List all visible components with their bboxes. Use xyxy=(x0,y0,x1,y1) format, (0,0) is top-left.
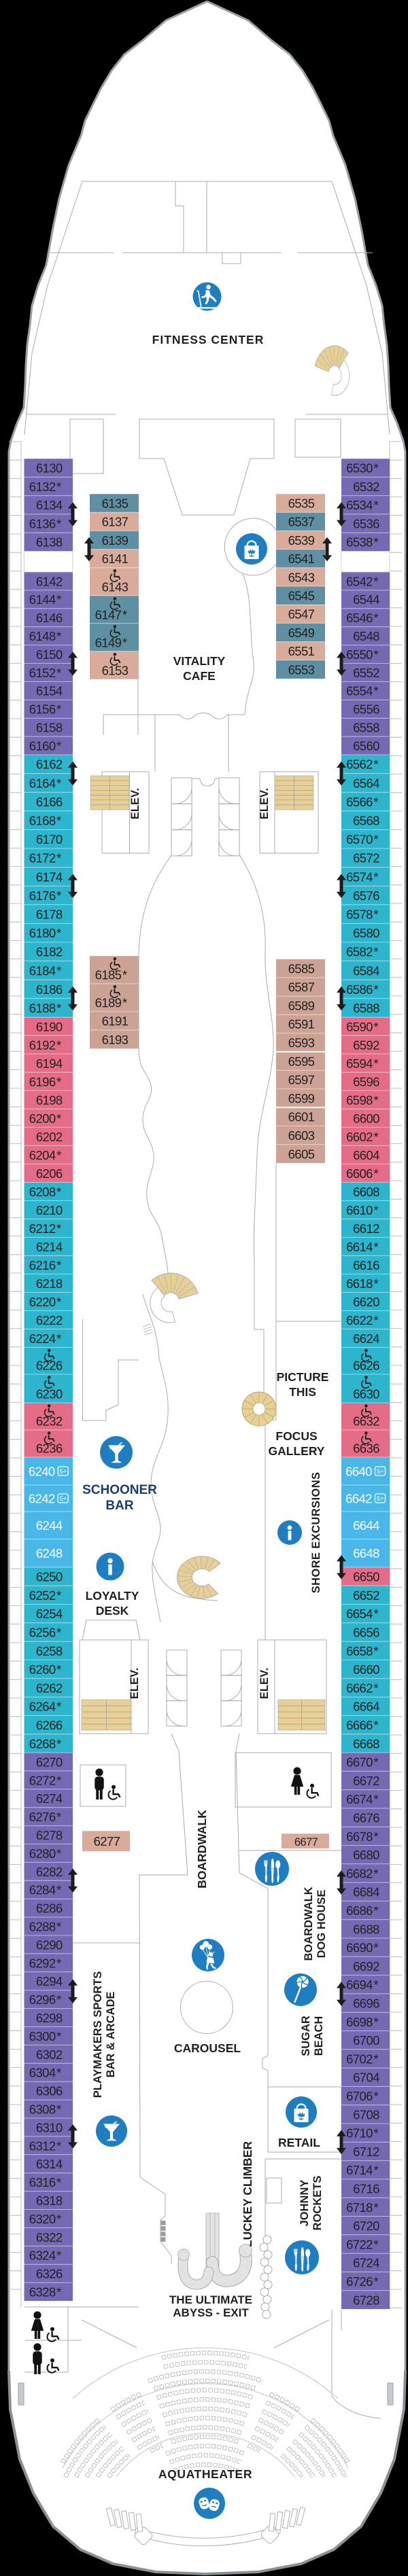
svg-text:6674*: 6674* xyxy=(346,1792,378,1806)
svg-text:6178: 6178 xyxy=(36,908,63,922)
svg-text:6706*: 6706* xyxy=(346,2089,378,2103)
svg-text:VITALITY: VITALITY xyxy=(173,654,226,668)
svg-text:6598*: 6598* xyxy=(346,1093,378,1107)
svg-text:6668: 6668 xyxy=(353,1736,379,1751)
svg-text:6696: 6696 xyxy=(353,1997,379,2011)
svg-text:6626: 6626 xyxy=(353,1359,379,1373)
svg-text:6728: 6728 xyxy=(353,2293,379,2307)
svg-text:6258: 6258 xyxy=(36,1644,63,1658)
svg-text:6132*: 6132* xyxy=(29,480,61,494)
svg-text:6170: 6170 xyxy=(36,832,63,846)
svg-text:6568: 6568 xyxy=(353,814,379,828)
svg-text:6306: 6306 xyxy=(36,2084,63,2098)
svg-text:6272*: 6272* xyxy=(29,1773,61,1787)
svg-text:ELEV.: ELEV. xyxy=(258,1668,271,1699)
svg-text:5+: 5+ xyxy=(377,1468,384,1475)
svg-text:6198: 6198 xyxy=(36,1093,63,1107)
svg-text:6292*: 6292* xyxy=(29,1956,61,1970)
svg-text:6654*: 6654* xyxy=(346,1607,378,1621)
svg-text:6640: 6640 xyxy=(345,1464,372,1478)
svg-text:6206: 6206 xyxy=(36,1166,63,1181)
svg-text:6280*: 6280* xyxy=(29,1846,61,1861)
svg-text:6648: 6648 xyxy=(353,1546,379,1560)
svg-text:6642: 6642 xyxy=(345,1491,372,1505)
svg-text:6194: 6194 xyxy=(36,1056,63,1071)
svg-text:6210: 6210 xyxy=(36,1203,63,1217)
svg-text:6537: 6537 xyxy=(288,515,315,529)
svg-text:6302: 6302 xyxy=(36,2047,63,2062)
svg-text:6188*: 6188* xyxy=(29,1001,61,1016)
svg-text:ELEV.: ELEV. xyxy=(129,788,141,819)
svg-text:6578*: 6578* xyxy=(346,908,378,922)
svg-text:6612: 6612 xyxy=(353,1221,379,1236)
svg-text:6662*: 6662* xyxy=(346,1681,378,1695)
svg-text:6636: 6636 xyxy=(353,1442,379,1456)
svg-text:6677: 6677 xyxy=(294,1836,318,1848)
svg-text:6720: 6720 xyxy=(353,2219,379,2233)
svg-text:6137: 6137 xyxy=(102,515,129,529)
svg-text:6308*: 6308* xyxy=(29,2103,61,2117)
svg-text:6236: 6236 xyxy=(36,1442,63,1456)
svg-text:6562*: 6562* xyxy=(346,757,378,772)
svg-text:6276*: 6276* xyxy=(29,1810,61,1824)
svg-text:6290: 6290 xyxy=(36,1937,63,1952)
svg-text:6700: 6700 xyxy=(353,2033,379,2047)
svg-text:6724: 6724 xyxy=(353,2256,379,2270)
svg-text:6587: 6587 xyxy=(288,980,315,995)
svg-text:6130: 6130 xyxy=(36,461,63,476)
svg-text:THIS: THIS xyxy=(289,1385,316,1399)
svg-text:6589: 6589 xyxy=(288,999,315,1013)
svg-text:6160*: 6160* xyxy=(29,739,61,753)
svg-text:6650: 6650 xyxy=(353,1570,379,1584)
svg-text:6256*: 6256* xyxy=(29,1626,61,1640)
svg-text:6250: 6250 xyxy=(36,1570,63,1584)
svg-text:6189*: 6189* xyxy=(95,996,127,1010)
svg-text:BAR & ARCADE: BAR & ARCADE xyxy=(105,1992,117,2078)
svg-text:6532: 6532 xyxy=(353,480,379,494)
svg-text:6620: 6620 xyxy=(353,1295,379,1309)
svg-text:6622*: 6622* xyxy=(346,1313,378,1327)
svg-text:6300*: 6300* xyxy=(29,2029,61,2043)
svg-text:6324*: 6324* xyxy=(29,2249,61,2263)
svg-text:6584: 6584 xyxy=(353,963,379,978)
svg-text:JOHNNY: JOHNNY xyxy=(299,2180,311,2227)
svg-text:6318: 6318 xyxy=(36,2194,63,2208)
svg-text:6644: 6644 xyxy=(353,1518,379,1533)
svg-text:6142: 6142 xyxy=(36,574,63,588)
svg-text:LOYALTY: LOYALTY xyxy=(86,1589,139,1603)
svg-text:6603: 6603 xyxy=(288,1128,315,1143)
svg-text:6143: 6143 xyxy=(102,579,129,594)
svg-text:6141: 6141 xyxy=(102,552,129,566)
svg-text:6278: 6278 xyxy=(36,1828,63,1842)
svg-text:6147*: 6147* xyxy=(95,607,127,622)
svg-text:6547: 6547 xyxy=(288,607,315,622)
svg-text:6196*: 6196* xyxy=(29,1075,61,1089)
svg-text:6686*: 6686* xyxy=(346,1903,378,1918)
svg-text:THE ULTIMATE: THE ULTIMATE xyxy=(169,2293,252,2306)
svg-text:6314: 6314 xyxy=(36,2157,63,2171)
svg-text:SCHOONER: SCHOONER xyxy=(82,1483,157,1497)
svg-text:6136*: 6136* xyxy=(29,516,61,531)
svg-text:6274: 6274 xyxy=(36,1791,63,1806)
svg-text:BEACH: BEACH xyxy=(313,2016,325,2056)
svg-text:6684: 6684 xyxy=(353,1885,379,1899)
svg-text:6618*: 6618* xyxy=(346,1276,378,1291)
svg-text:6277: 6277 xyxy=(94,1834,120,1848)
svg-text:6156*: 6156* xyxy=(29,702,61,717)
svg-text:ELEV.: ELEV. xyxy=(129,1668,141,1699)
svg-text:6220*: 6220* xyxy=(29,1295,61,1309)
svg-text:6586*: 6586* xyxy=(346,982,378,997)
svg-text:6182: 6182 xyxy=(36,945,63,959)
svg-text:6556: 6556 xyxy=(353,702,379,717)
svg-text:6176*: 6176* xyxy=(29,889,61,903)
svg-text:6570*: 6570* xyxy=(346,832,378,846)
svg-text:6546*: 6546* xyxy=(346,611,378,625)
svg-text:6316*: 6316* xyxy=(29,2175,61,2189)
svg-text:6534*: 6534* xyxy=(346,498,378,512)
svg-text:6193: 6193 xyxy=(102,1033,129,1047)
svg-text:6591: 6591 xyxy=(288,1017,315,1031)
svg-text:6192*: 6192* xyxy=(29,1038,61,1052)
svg-text:RETAIL: RETAIL xyxy=(278,2136,320,2149)
svg-text:6184*: 6184* xyxy=(29,963,61,978)
svg-text:SHORE EXCURSIONS: SHORE EXCURSIONS xyxy=(310,1472,322,1594)
svg-text:6610*: 6610* xyxy=(346,1203,378,1217)
svg-text:6548: 6548 xyxy=(353,629,379,643)
svg-text:6595: 6595 xyxy=(288,1054,315,1069)
svg-text:6694*: 6694* xyxy=(346,1978,378,1992)
svg-text:6218: 6218 xyxy=(36,1276,63,1291)
svg-text:6296*: 6296* xyxy=(29,1992,61,2007)
svg-text:LUCKEY CLIMBER: LUCKEY CLIMBER xyxy=(241,2141,254,2248)
svg-text:6208*: 6208* xyxy=(29,1185,61,1199)
svg-text:6191: 6191 xyxy=(102,1014,129,1028)
svg-text:6152*: 6152* xyxy=(29,666,61,680)
svg-text:6604: 6604 xyxy=(353,1148,379,1162)
svg-text:6180*: 6180* xyxy=(29,926,61,940)
svg-text:6549: 6549 xyxy=(288,626,315,640)
svg-text:6242: 6242 xyxy=(29,1491,55,1505)
svg-text:6624: 6624 xyxy=(353,1331,379,1346)
svg-text:6564: 6564 xyxy=(353,776,379,790)
svg-text:5+: 5+ xyxy=(60,1495,67,1503)
svg-text:6676: 6676 xyxy=(353,1811,379,1825)
svg-text:6590*: 6590* xyxy=(346,1020,378,1034)
svg-text:6260*: 6260* xyxy=(29,1662,61,1677)
svg-text:6601: 6601 xyxy=(288,1110,315,1124)
svg-text:6580: 6580 xyxy=(353,926,379,940)
svg-text:6268*: 6268* xyxy=(29,1736,61,1751)
svg-text:6553: 6553 xyxy=(288,662,315,677)
svg-text:6678*: 6678* xyxy=(346,1829,378,1844)
svg-text:6174: 6174 xyxy=(36,870,63,884)
svg-text:6670*: 6670* xyxy=(346,1755,378,1770)
svg-text:6172*: 6172* xyxy=(29,851,61,865)
svg-text:ELEV.: ELEV. xyxy=(258,788,271,819)
svg-text:6708: 6708 xyxy=(353,2107,379,2122)
svg-text:6574*: 6574* xyxy=(346,870,378,884)
svg-text:6148*: 6148* xyxy=(29,629,61,643)
svg-text:CAFE: CAFE xyxy=(183,669,216,683)
svg-text:6224*: 6224* xyxy=(29,1331,61,1346)
svg-text:6536: 6536 xyxy=(353,516,379,531)
svg-text:6144*: 6144* xyxy=(29,592,61,607)
svg-text:6660: 6660 xyxy=(353,1662,379,1677)
svg-text:AQUATHEATER: AQUATHEATER xyxy=(158,2467,252,2481)
svg-text:6212*: 6212* xyxy=(29,1221,61,1236)
svg-text:6248: 6248 xyxy=(36,1546,63,1560)
svg-text:6266: 6266 xyxy=(36,1718,63,1732)
svg-text:6592: 6592 xyxy=(353,1038,379,1052)
svg-text:6185*: 6185* xyxy=(95,968,127,982)
svg-text:6551: 6551 xyxy=(288,644,315,658)
svg-text:6692: 6692 xyxy=(353,1959,379,1973)
svg-text:6545: 6545 xyxy=(288,589,315,603)
svg-text:6539: 6539 xyxy=(288,533,315,548)
svg-text:6202: 6202 xyxy=(36,1130,63,1144)
svg-text:6139: 6139 xyxy=(102,533,129,548)
svg-text:PICTURE: PICTURE xyxy=(277,1370,329,1384)
svg-text:6722*: 6722* xyxy=(346,2237,378,2251)
svg-text:6543: 6543 xyxy=(288,570,315,584)
svg-text:6154: 6154 xyxy=(36,684,63,698)
svg-text:6702*: 6702* xyxy=(346,2052,378,2066)
svg-text:ROCKETS: ROCKETS xyxy=(311,2176,324,2231)
svg-text:6310: 6310 xyxy=(36,2120,63,2134)
svg-text:DOG HOUSE: DOG HOUSE xyxy=(316,1890,328,1958)
svg-text:6288*: 6288* xyxy=(29,1920,61,1934)
svg-text:6600: 6600 xyxy=(353,1111,379,1126)
svg-text:FITNESS CENTER: FITNESS CENTER xyxy=(152,333,265,346)
svg-text:6162: 6162 xyxy=(36,757,63,772)
svg-text:6664: 6664 xyxy=(353,1700,379,1714)
svg-text:6726*: 6726* xyxy=(346,2274,378,2289)
svg-text:6704: 6704 xyxy=(353,2071,379,2085)
svg-text:6550*: 6550* xyxy=(346,647,378,662)
svg-text:6656: 6656 xyxy=(353,1626,379,1640)
svg-text:6596: 6596 xyxy=(353,1075,379,1089)
svg-text:6153: 6153 xyxy=(102,663,129,677)
svg-text:ABYSS - EXIT: ABYSS - EXIT xyxy=(173,2306,249,2319)
svg-text:6594*: 6594* xyxy=(346,1056,378,1071)
svg-text:GALLERY: GALLERY xyxy=(269,1444,325,1458)
svg-text:5+: 5+ xyxy=(377,1495,384,1503)
svg-text:6286: 6286 xyxy=(36,1901,63,1916)
svg-text:6149*: 6149* xyxy=(95,635,127,649)
svg-text:6134: 6134 xyxy=(36,498,63,512)
svg-text:6535: 6535 xyxy=(288,497,315,511)
svg-text:6200*: 6200* xyxy=(29,1111,61,1126)
svg-text:5+: 5+ xyxy=(60,1468,67,1475)
svg-text:6252*: 6252* xyxy=(29,1588,61,1603)
svg-text:6230: 6230 xyxy=(36,1387,63,1401)
svg-text:6244: 6244 xyxy=(36,1518,63,1533)
svg-text:6602*: 6602* xyxy=(346,1130,378,1144)
svg-text:PLAYMAKERS SPORTS: PLAYMAKERS SPORTS xyxy=(92,1971,104,2098)
svg-text:6630: 6630 xyxy=(353,1387,379,1401)
svg-text:6658*: 6658* xyxy=(346,1644,378,1658)
svg-text:6320*: 6320* xyxy=(29,2212,61,2226)
svg-text:6166: 6166 xyxy=(36,795,63,809)
svg-text:6710*: 6710* xyxy=(346,2126,378,2141)
svg-text:6240: 6240 xyxy=(29,1464,55,1478)
svg-text:6146: 6146 xyxy=(36,611,63,625)
svg-text:SUGAR: SUGAR xyxy=(300,2016,312,2056)
svg-text:6652: 6652 xyxy=(353,1588,379,1603)
svg-text:6138: 6138 xyxy=(36,535,63,550)
svg-text:6542*: 6542* xyxy=(346,574,378,588)
svg-text:6597: 6597 xyxy=(288,1073,315,1087)
svg-text:6554*: 6554* xyxy=(346,684,378,698)
svg-text:6608: 6608 xyxy=(353,1185,379,1199)
svg-text:6222: 6222 xyxy=(36,1313,63,1327)
svg-text:6254: 6254 xyxy=(36,1607,63,1621)
svg-text:6164*: 6164* xyxy=(29,776,61,790)
svg-text:6232: 6232 xyxy=(36,1414,63,1429)
svg-text:6672: 6672 xyxy=(353,1774,379,1788)
svg-text:6566*: 6566* xyxy=(346,795,378,809)
svg-text:6294: 6294 xyxy=(36,1974,63,1988)
svg-text:6216*: 6216* xyxy=(29,1258,61,1272)
svg-text:BOARDWALK: BOARDWALK xyxy=(195,1810,209,1889)
svg-text:6606*: 6606* xyxy=(346,1166,378,1181)
svg-text:6688: 6688 xyxy=(353,1922,379,1936)
svg-text:FOCUS: FOCUS xyxy=(275,1429,317,1443)
svg-text:6582*: 6582* xyxy=(346,945,378,959)
svg-text:6576: 6576 xyxy=(353,889,379,903)
svg-text:BAR: BAR xyxy=(105,1499,133,1513)
svg-text:6588: 6588 xyxy=(353,1001,379,1016)
svg-text:DESK: DESK xyxy=(96,1604,129,1617)
svg-text:6666*: 6666* xyxy=(346,1718,378,1732)
svg-text:6150: 6150 xyxy=(36,647,63,662)
svg-text:6682*: 6682* xyxy=(346,1866,378,1880)
svg-text:6593: 6593 xyxy=(288,1036,315,1050)
svg-text:6690*: 6690* xyxy=(346,1941,378,1955)
svg-text:6530*: 6530* xyxy=(346,461,378,476)
svg-text:6186: 6186 xyxy=(36,982,63,997)
svg-text:6312*: 6312* xyxy=(29,2139,61,2153)
svg-text:6282: 6282 xyxy=(36,1865,63,1879)
svg-text:6298: 6298 xyxy=(36,2011,63,2025)
svg-text:6558: 6558 xyxy=(353,721,379,735)
svg-text:6614*: 6614* xyxy=(346,1240,378,1254)
svg-text:6560: 6560 xyxy=(353,739,379,753)
svg-text:6326: 6326 xyxy=(36,2267,63,2281)
svg-text:6168*: 6168* xyxy=(29,814,61,828)
svg-text:6616: 6616 xyxy=(353,1258,379,1272)
svg-text:6572: 6572 xyxy=(353,851,379,865)
svg-text:6328*: 6328* xyxy=(29,2285,61,2300)
svg-text:6538*: 6538* xyxy=(346,535,378,550)
svg-text:6632: 6632 xyxy=(353,1414,379,1429)
svg-text:6585: 6585 xyxy=(288,961,315,976)
svg-text:6714*: 6714* xyxy=(346,2163,378,2177)
svg-text:6322: 6322 xyxy=(36,2230,63,2244)
svg-text:6214: 6214 xyxy=(36,1240,63,1254)
svg-text:6226: 6226 xyxy=(36,1359,63,1373)
svg-text:6541: 6541 xyxy=(288,552,315,566)
svg-text:6718*: 6718* xyxy=(346,2200,378,2215)
svg-text:6680: 6680 xyxy=(353,1848,379,1862)
svg-text:6698*: 6698* xyxy=(346,2015,378,2029)
svg-text:6264*: 6264* xyxy=(29,1700,61,1714)
svg-text:6552: 6552 xyxy=(353,666,379,680)
svg-text:6716: 6716 xyxy=(353,2182,379,2196)
svg-text:6605: 6605 xyxy=(288,1147,315,1161)
svg-text:6135: 6135 xyxy=(102,497,129,511)
svg-text:6204*: 6204* xyxy=(29,1148,61,1162)
svg-text:BOARDWALK: BOARDWALK xyxy=(303,1886,315,1961)
svg-text:6544: 6544 xyxy=(353,592,379,607)
svg-text:6284*: 6284* xyxy=(29,1883,61,1897)
svg-text:6270: 6270 xyxy=(36,1755,63,1769)
svg-text:6190: 6190 xyxy=(36,1020,63,1034)
svg-text:6262: 6262 xyxy=(36,1681,63,1695)
svg-text:6158: 6158 xyxy=(36,721,63,735)
svg-text:6304*: 6304* xyxy=(29,2066,61,2080)
svg-text:6599: 6599 xyxy=(288,1091,315,1105)
svg-text:6712: 6712 xyxy=(353,2145,379,2159)
svg-text:CAROUSEL: CAROUSEL xyxy=(174,2041,241,2055)
